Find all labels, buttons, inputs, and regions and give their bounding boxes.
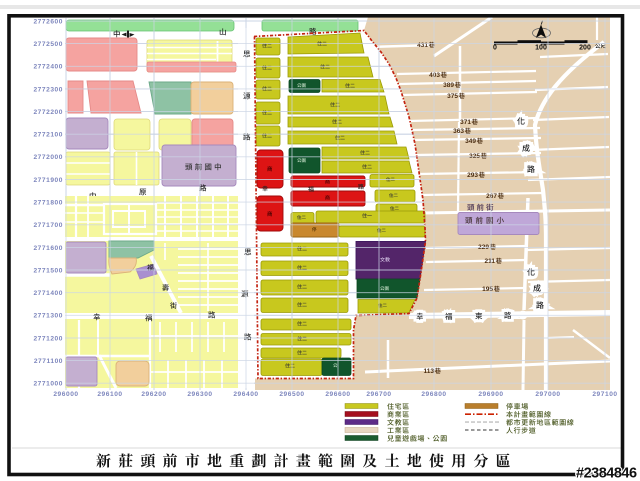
svg-text:375: 375 <box>447 93 458 100</box>
svg-text:296900: 296900 <box>478 391 503 398</box>
svg-text:296800: 296800 <box>421 391 446 398</box>
svg-text:2772600: 2772600 <box>33 18 63 25</box>
svg-text:296300: 296300 <box>187 391 212 398</box>
svg-text:296100: 296100 <box>97 391 122 398</box>
svg-text:2772100: 2772100 <box>33 132 63 139</box>
svg-text:297100: 297100 <box>592 391 617 398</box>
svg-text:296000: 296000 <box>53 391 78 398</box>
svg-text:267: 267 <box>486 193 497 200</box>
svg-text:2771900: 2771900 <box>33 177 63 184</box>
svg-text:296400: 296400 <box>233 391 258 398</box>
svg-text:296600: 296600 <box>325 391 350 398</box>
svg-text:2771800: 2771800 <box>33 200 63 207</box>
svg-text:2772300: 2772300 <box>33 86 63 93</box>
svg-text:211: 211 <box>485 258 496 265</box>
svg-text:431: 431 <box>417 42 428 49</box>
svg-text:2772400: 2772400 <box>33 64 63 71</box>
svg-text:0: 0 <box>493 45 497 52</box>
svg-text:2771400: 2771400 <box>33 290 63 297</box>
svg-text:297000: 297000 <box>535 391 560 398</box>
svg-text:293: 293 <box>467 172 478 179</box>
svg-text:296500: 296500 <box>279 391 304 398</box>
svg-text:2771300: 2771300 <box>33 313 63 320</box>
svg-text:#2384846: #2384846 <box>576 466 637 481</box>
svg-text:200: 200 <box>579 45 591 52</box>
svg-text:100: 100 <box>535 45 547 52</box>
svg-text:296200: 296200 <box>141 391 166 398</box>
svg-text:195: 195 <box>482 286 493 293</box>
svg-text:2771600: 2771600 <box>33 245 63 252</box>
svg-text:113: 113 <box>424 368 435 375</box>
svg-text:349: 349 <box>465 138 476 145</box>
svg-text:2772500: 2772500 <box>33 41 63 48</box>
svg-text:2771200: 2771200 <box>33 335 63 342</box>
svg-text:2771500: 2771500 <box>33 267 63 274</box>
svg-text:296700: 296700 <box>366 391 391 398</box>
svg-text:389: 389 <box>443 82 454 89</box>
svg-text:403: 403 <box>429 72 440 79</box>
svg-text:2772200: 2772200 <box>33 109 63 116</box>
svg-text:371: 371 <box>460 119 471 126</box>
svg-text:2771100: 2771100 <box>34 358 63 365</box>
svg-text:2772000: 2772000 <box>33 154 63 161</box>
svg-text:2771000: 2771000 <box>33 381 63 388</box>
svg-text:2771700: 2771700 <box>33 222 63 229</box>
